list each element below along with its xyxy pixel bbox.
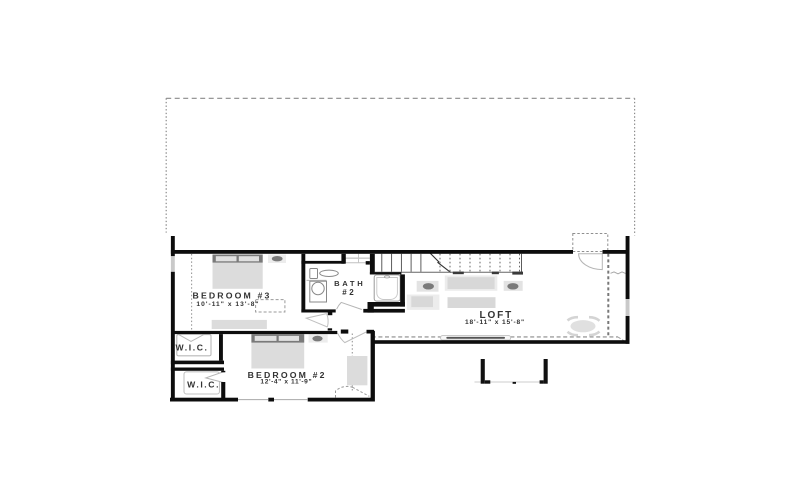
svg-text:10'-11" x 13'-8": 10'-11" x 13'-8": [196, 301, 259, 308]
svg-text:BATH: BATH: [334, 279, 365, 288]
svg-text:BEDROOM #3: BEDROOM #3: [193, 291, 272, 301]
svg-text:18'-11" x 15'-8": 18'-11" x 15'-8": [465, 319, 525, 326]
svg-text:#2: #2: [342, 288, 356, 297]
svg-text:12'-4" x 11'-9": 12'-4" x 11'-9": [260, 379, 312, 386]
svg-text:W.I.C.: W.I.C.: [176, 342, 209, 352]
svg-text:W.I.C.: W.I.C.: [187, 379, 220, 389]
